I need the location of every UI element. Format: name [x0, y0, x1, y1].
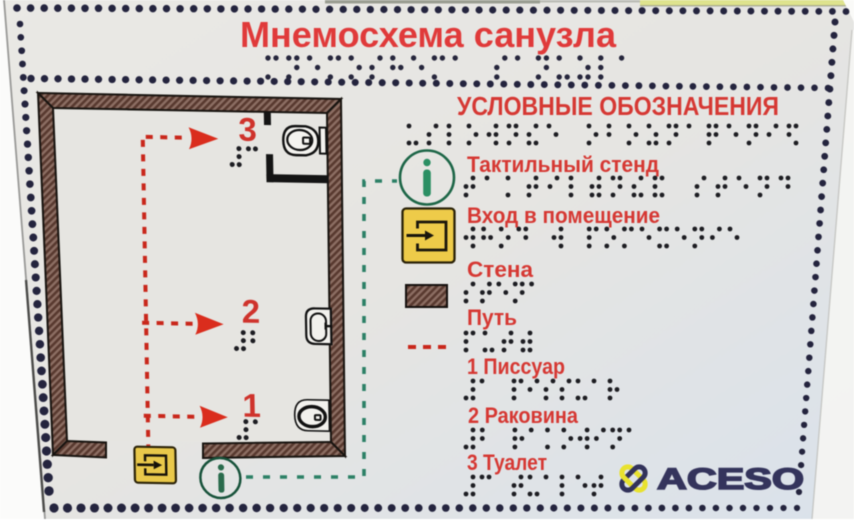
svg-text:УСЛОВНЫЕ ОБОЗНАЧЕНИЯ: УСЛОВНЫЕ ОБОЗНАЧЕНИЯ: [457, 91, 779, 121]
svg-text:Тактильный стенд: Тактильный стенд: [467, 152, 659, 177]
svg-text:Мнемосхема санузла: Мнемосхема санузла: [240, 14, 617, 55]
svg-text:2: 2: [241, 293, 260, 330]
svg-text:3 Туалет: 3 Туалет: [467, 450, 547, 475]
svg-text:1: 1: [242, 387, 261, 424]
svg-text:2 Раковина: 2 Раковина: [468, 403, 579, 428]
svg-text:ACESO: ACESO: [657, 463, 804, 496]
svg-text:1 Писсуар: 1 Писсуар: [467, 354, 565, 379]
svg-text:3: 3: [238, 111, 257, 148]
svg-text:Вход в помещение: Вход в помещение: [467, 203, 660, 228]
svg-text:Путь: Путь: [467, 305, 517, 330]
svg-text:Стена: Стена: [467, 257, 534, 282]
